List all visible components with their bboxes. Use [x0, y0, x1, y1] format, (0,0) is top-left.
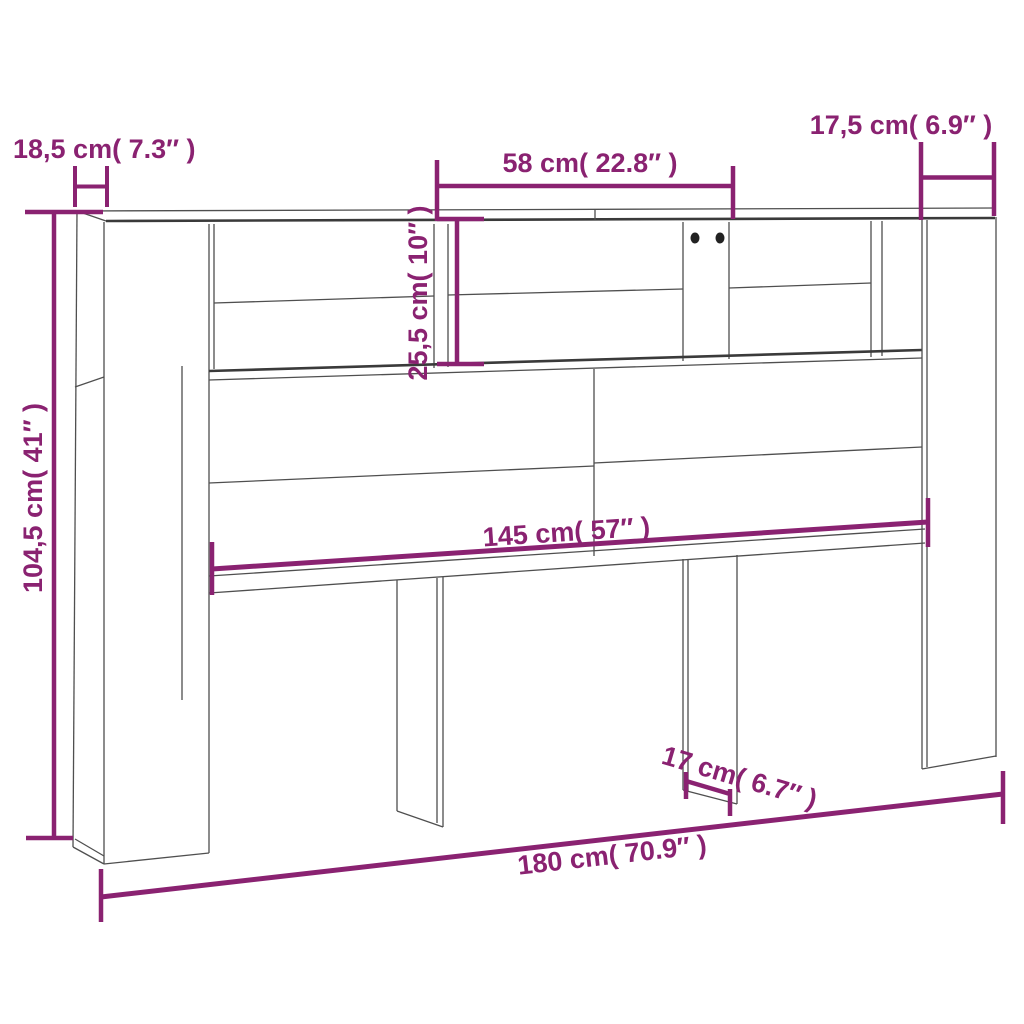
- left-outer-edge: [73, 211, 77, 847]
- dim-label-right-compartment-width: 17,5 cm( 6.9″ ): [810, 110, 993, 140]
- diagram-canvas: 18,5 cm( 7.3″ ) 104,5 cm( 41″ ) 58 cm( 2…: [0, 0, 1024, 1024]
- left-foot-diagonal-2: [75, 839, 104, 856]
- mid-shelf-right: [729, 283, 871, 288]
- dim-line: [101, 794, 1003, 897]
- screw-hole-right: [716, 233, 725, 244]
- right-panel-bottom-edge: [922, 756, 996, 769]
- dimension-diagram: 18,5 cm( 7.3″ ) 104,5 cm( 41″ ) 58 cm( 2…: [0, 0, 1024, 1024]
- dim-inner-width: 145 cm( 57″ ): [212, 498, 928, 595]
- dim-label-depth-top-left: 18,5 cm( 7.3″ ): [13, 134, 196, 164]
- dim-label-total-height: 104,5 cm( 41″ ): [18, 403, 48, 593]
- dim-line: [75, 166, 107, 207]
- back-panel-mid-line-right: [594, 447, 922, 463]
- left-foot-diagonal: [73, 847, 104, 864]
- dim-label-inner-width: 145 cm( 57″ ): [482, 512, 651, 553]
- left-side-shelf-edge: [75, 377, 104, 387]
- top-board-top-edge: [77, 208, 995, 211]
- mid-shelf-center: [448, 289, 683, 295]
- dim-label-center-compartment-width: 58 cm( 22.8″ ): [502, 148, 677, 178]
- shelf-row-bottom-front: [209, 350, 922, 371]
- dim-total-height: 104,5 cm( 41″ ): [18, 212, 103, 838]
- mid-shelf-left: [214, 296, 434, 303]
- dim-depth-top-left: 18,5 cm( 7.3″ ): [13, 134, 196, 207]
- back-panel-bottom-under: [209, 543, 925, 593]
- back-panel-mid-line-left: [209, 466, 594, 483]
- mid-left-leg-bottom: [397, 811, 443, 827]
- screw-hole-left: [691, 233, 700, 244]
- dim-label-shelf-height: 25,5 cm( 10″ ): [403, 205, 433, 380]
- left-leg-bottom-edge: [104, 853, 209, 864]
- dim-total-width: 180 cm( 70.9″ ): [101, 771, 1003, 922]
- dim-right-compartment-width: 17,5 cm( 6.9″ ): [810, 110, 994, 220]
- dim-line: [437, 219, 484, 364]
- top-board-bottom-edge: [106, 218, 995, 221]
- dim-shelf-height: 25,5 cm( 10″ ): [403, 205, 484, 380]
